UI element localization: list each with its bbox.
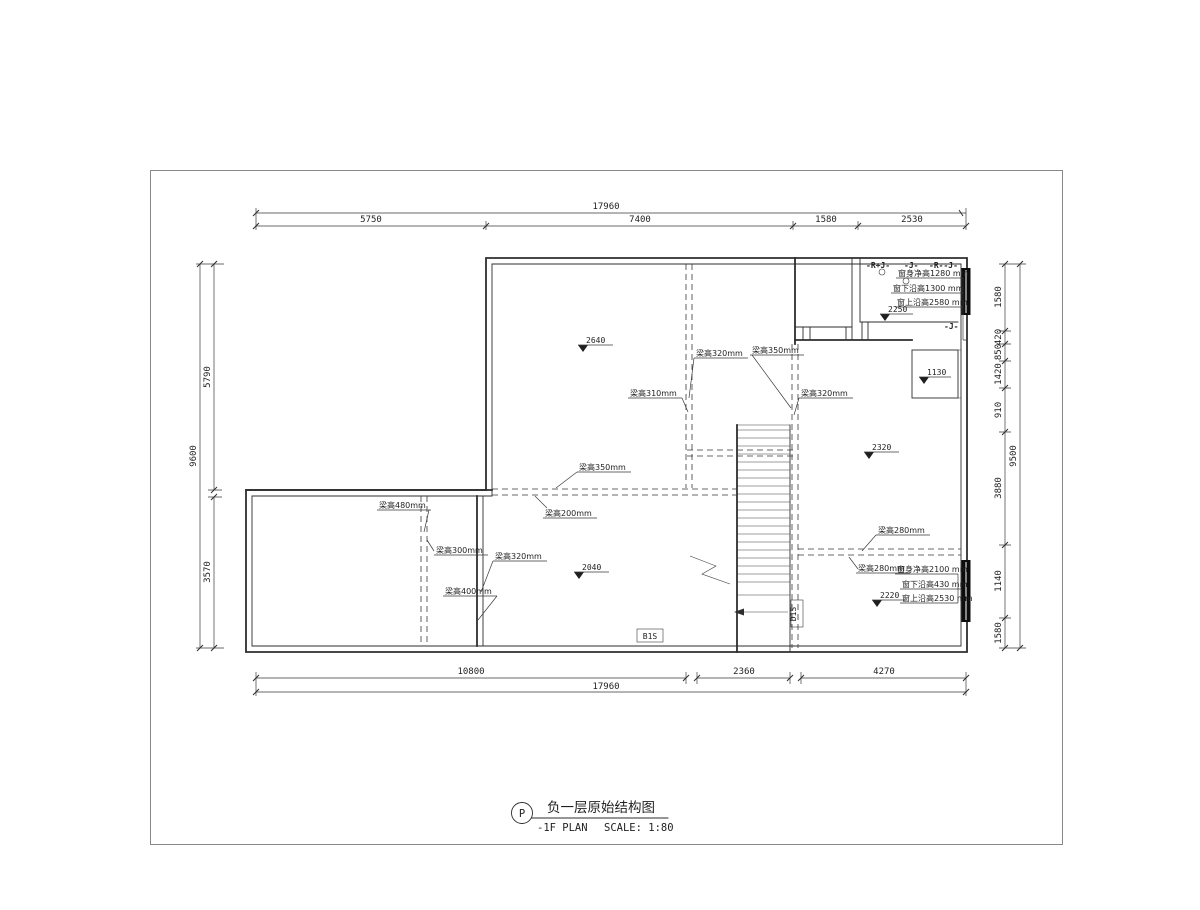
zone-tag-0: -R+J- xyxy=(866,261,890,270)
zone-tag-3: -J- xyxy=(944,322,958,331)
dim-top-overall: 17960 xyxy=(592,202,619,212)
dim-top-seg-3: 2530 xyxy=(901,215,923,225)
svg-text:梁高310mm: 梁高310mm xyxy=(630,388,677,398)
drawing-scale: SCALE: 1:80 xyxy=(604,822,674,834)
window-annotation-bottom: 窗身净高2100 mm 窗下沿高430 mm 窗上沿高2530 mm xyxy=(895,564,973,603)
svg-text:梁高320mm: 梁高320mm xyxy=(801,388,848,398)
beam-label-3: 梁高320mm xyxy=(794,388,853,415)
stair-treads xyxy=(737,425,790,595)
dim-right-seg-7: 1580 xyxy=(994,622,1004,644)
svg-text:梁高200mm: 梁高200mm xyxy=(545,508,592,518)
dim-right-seg-6: 1140 xyxy=(994,570,1004,592)
envelope-outer xyxy=(246,258,967,652)
svg-text:2320: 2320 xyxy=(872,443,891,452)
zone-tag-1: -J- xyxy=(904,261,918,270)
room-a-walls xyxy=(795,258,852,327)
dim-bottom-seg-2: 4270 xyxy=(873,667,895,677)
svg-text:梁高400mm: 梁高400mm xyxy=(445,586,492,596)
beam-middle-horizontal xyxy=(492,489,737,495)
dim-top-seg-0: 5750 xyxy=(360,215,382,225)
beam-labels: 梁高320mm 梁高350mm 梁高310mm 梁高320mm 梁高350mm … xyxy=(377,345,930,620)
dim-left-seg-0: 5790 xyxy=(203,366,213,388)
svg-text:2040: 2040 xyxy=(582,563,601,572)
door-tags: B1S D1S xyxy=(637,600,803,642)
dim-right-seg-3: 1420 xyxy=(994,363,1004,385)
dim-top-seg-1: 7400 xyxy=(629,215,651,225)
beam-label-2: 梁高310mm xyxy=(628,388,688,412)
title-block: P 负一层原始结构图 -1F PLAN SCALE: 1:80 xyxy=(512,800,674,834)
column-stubs xyxy=(803,322,868,340)
beam-hall-left xyxy=(792,344,798,648)
elevation-2040: 2040 xyxy=(574,563,609,579)
zone-tag-2: -R--J- xyxy=(929,261,958,270)
svg-text:2640: 2640 xyxy=(586,336,605,345)
beam-label-8: 梁高320mm xyxy=(481,551,547,592)
beam-label-9: 梁高400mm xyxy=(443,586,497,620)
title-tag-letter: P xyxy=(519,808,525,820)
elevation-2250: 2250 xyxy=(880,305,913,321)
beam-label-6: 梁高480mm xyxy=(377,500,431,532)
beam-label-1: 梁高350mm xyxy=(750,345,804,408)
drawing-title-en: -1F PLAN xyxy=(537,822,588,834)
dim-right-seg-4: 910 xyxy=(994,402,1004,418)
dim-bottom: 10800 2360 4270 17960 xyxy=(253,667,969,696)
win-bottom-line-2: 窗上沿高2530 mm xyxy=(902,593,973,603)
dim-right: 1580 420 850 1420 910 3880 1140 1580 950… xyxy=(994,261,1026,651)
win-top-line-2: 窗上沿高2580 mm xyxy=(897,297,968,307)
beam-stair-horizontal xyxy=(687,450,795,456)
dim-right-seg-0: 1580 xyxy=(994,286,1004,308)
svg-text:梁高320mm: 梁高320mm xyxy=(495,551,542,561)
elevation-2640: 2640 xyxy=(578,336,613,352)
dim-right-seg-2: 850 xyxy=(994,344,1004,360)
svg-text:梁高480mm: 梁高480mm xyxy=(379,500,426,510)
beam-label-10: 梁高280mm xyxy=(862,525,930,551)
beam-wing-vertical xyxy=(421,496,427,645)
drawing-title: 负一层原始结构图 xyxy=(547,800,655,816)
dim-top: 17960 5750 7400 1580 2530 xyxy=(253,202,969,230)
envelope-inner xyxy=(252,264,961,646)
dim-right-overall: 9500 xyxy=(1009,445,1019,467)
svg-text:梁高300mm: 梁高300mm xyxy=(436,545,483,555)
beam-label-7: 梁高300mm xyxy=(427,540,488,555)
dim-bottom-overall: 17960 xyxy=(592,682,619,692)
elevation-2320: 2320 xyxy=(864,443,899,459)
door-tag-d1s: D1S xyxy=(789,607,798,622)
door-tag-b1s: B1S xyxy=(643,632,658,641)
dim-right-seg-5: 3880 xyxy=(994,477,1004,499)
svg-text:梁高350mm: 梁高350mm xyxy=(752,345,799,355)
dim-left: 9600 5790 3570 xyxy=(189,261,224,651)
stair-break-line xyxy=(690,556,730,584)
beam-label-4: 梁高350mm xyxy=(556,462,631,488)
svg-text:梁高350mm: 梁高350mm xyxy=(579,462,626,472)
dim-top-seg-2: 1580 xyxy=(815,215,837,225)
floor-plan-drawing: 17960 5750 7400 1580 2530 10800 2360 427… xyxy=(0,0,1200,910)
svg-text:梁高320mm: 梁高320mm xyxy=(696,348,743,358)
beam-upper-left xyxy=(686,264,692,488)
win-top-line-1: 窗下沿高1300 mm xyxy=(893,283,964,293)
elevation-2220: 2220 xyxy=(872,591,905,607)
stairs xyxy=(690,425,790,616)
elevation-1130: 1130 xyxy=(919,368,951,384)
win-bottom-line-0: 窗身净高2100 mm xyxy=(897,564,968,574)
svg-text:2220: 2220 xyxy=(880,591,899,600)
svg-text:1130: 1130 xyxy=(927,368,946,377)
dim-bottom-seg-1: 2360 xyxy=(733,667,755,677)
walls xyxy=(246,258,967,652)
dim-bottom-seg-0: 10800 xyxy=(457,667,484,677)
beam-hall-horizontal xyxy=(798,549,961,555)
dim-left-overall: 9600 xyxy=(189,445,199,467)
dim-left-seg-1: 3570 xyxy=(203,561,213,583)
dim-right-seg-1: 420 xyxy=(994,329,1004,345)
stair-arrow-head xyxy=(734,609,744,616)
beam-label-0: 梁高320mm xyxy=(689,348,748,398)
svg-text:梁高280mm: 梁高280mm xyxy=(878,525,925,535)
beam-label-5: 梁高200mm xyxy=(535,496,597,518)
